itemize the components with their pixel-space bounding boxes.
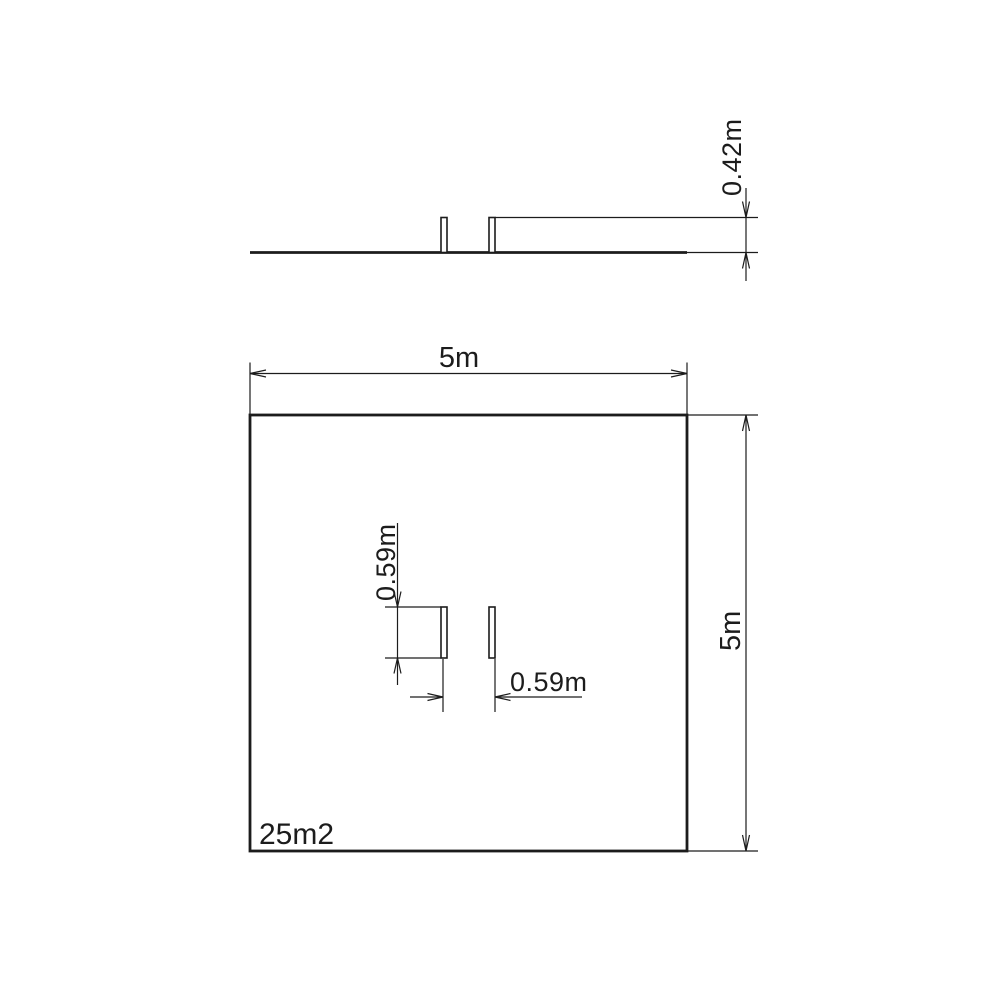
opening-right-wall <box>489 607 495 658</box>
opening-left-wall <box>441 607 447 658</box>
opening-width-dim-label: 0.59m <box>510 667 588 697</box>
drawing-canvas: 0.42m 25m2 5m 5m <box>0 0 1000 1000</box>
opening-depth-dimension: 0.59m <box>371 523 441 685</box>
plan-width-dim-label: 5m <box>439 342 479 374</box>
elevation-thickness-dimension: 0.42m <box>717 118 750 281</box>
plan-opening: 0.59m 0.59m <box>371 523 588 712</box>
elevation-view: 0.42m <box>250 118 758 281</box>
opening-width-dimension: 0.59m <box>410 659 588 712</box>
plan-height-dim-label: 5m <box>715 611 747 651</box>
plan-view: 25m2 5m 5m <box>250 342 758 851</box>
plan-width-dimension: 5m <box>250 342 687 415</box>
elevation-thickness-dim-label: 0.42m <box>717 118 747 196</box>
opening-depth-dim-label: 0.59m <box>371 523 401 601</box>
plan-height-dimension: 5m <box>687 415 758 851</box>
elevation-left-stud <box>441 218 447 253</box>
technical-drawing: 0.42m 25m2 5m 5m <box>0 0 1000 1000</box>
plan-outline <box>250 415 687 851</box>
elevation-right-stud <box>489 218 495 253</box>
plan-area-label: 25m2 <box>259 818 334 851</box>
